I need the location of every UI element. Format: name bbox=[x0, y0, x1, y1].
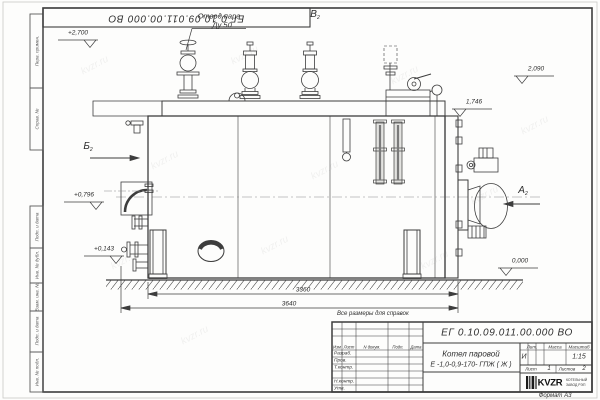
dimension-annotations bbox=[58, 29, 554, 314]
titleblock-col-doc: N докум. bbox=[364, 344, 381, 349]
ground-line bbox=[106, 280, 523, 290]
titleblock-row-tkontr: Т.контр. bbox=[334, 365, 353, 370]
boiler-side-view bbox=[93, 40, 540, 289]
titleblock-mass-label: Масса bbox=[548, 344, 561, 349]
safety-valve bbox=[300, 42, 320, 99]
water-level-gauge bbox=[374, 120, 387, 184]
titleblock-col-list: Лист bbox=[344, 344, 355, 349]
view-marker-b: Б2 bbox=[83, 141, 92, 153]
titleblock-product-type: Е -1,0-0,9-170- ГПЖ ( Ж ) bbox=[430, 362, 511, 369]
titleblock-row-prov: Пров. bbox=[334, 358, 347, 363]
reference-note: Все размеры для справок bbox=[337, 311, 409, 317]
titleblock-sheet-number: 1 bbox=[547, 366, 550, 372]
titleblock-sheet-label: Лист bbox=[525, 367, 537, 372]
dimension-label: 3360 bbox=[296, 287, 310, 294]
margin-stamp: Подп. и дата bbox=[34, 213, 39, 242]
kvzr-logo-mark bbox=[526, 376, 537, 389]
top-casing bbox=[93, 101, 445, 133]
drawing-sheet: kvzr.ru kvzr.ru kvzr.ru kvzr.ru kvzr.ru … bbox=[0, 0, 600, 400]
view-marker-a: А2 bbox=[518, 185, 527, 197]
boiler-shell bbox=[116, 116, 540, 278]
view-sheet-ref: 2 bbox=[525, 191, 528, 197]
titleblock-sheets-total: 2 bbox=[582, 366, 585, 372]
drawing-canvas bbox=[0, 0, 600, 400]
titleblock-col-date: Дата bbox=[410, 344, 421, 349]
kvzr-logo-text: KVZR bbox=[538, 377, 563, 388]
steam-outlet-dn-label: Ду 50 bbox=[212, 20, 232, 29]
margin-stamp: Справ. № bbox=[34, 109, 39, 130]
margin-stamp: Перв. примен. bbox=[34, 36, 39, 67]
titleblock-col-izm: Изм bbox=[333, 344, 341, 349]
titleblock-lit-label: Лит. bbox=[527, 344, 538, 349]
rear-dome bbox=[384, 46, 442, 116]
titleblock-sheets-label: Листов bbox=[559, 367, 575, 372]
level-float-tube bbox=[343, 119, 351, 161]
format-label: Формат А3 bbox=[539, 393, 572, 399]
dimension-label: 3640 bbox=[282, 301, 296, 308]
elevation-label: 2,090 bbox=[528, 66, 544, 73]
sheet-frame bbox=[3, 2, 597, 398]
margin-stamp: Инв. № подл. bbox=[34, 358, 39, 387]
elevation-label: +2,700 bbox=[68, 30, 88, 37]
titleblock-scale-value: 1:15 bbox=[572, 354, 586, 361]
elevation-label: 1,746 bbox=[466, 99, 482, 106]
margin-stamp: Подп. и дата bbox=[34, 317, 39, 346]
support-legs bbox=[149, 230, 421, 279]
elevation-label: +0,796 bbox=[74, 192, 94, 199]
titleblock-row-nkontr: Н.контр. bbox=[334, 379, 354, 384]
elevation-label: +0,143 bbox=[94, 246, 114, 253]
water-level-gauge bbox=[392, 120, 405, 184]
burner bbox=[458, 148, 508, 238]
titleblock-col-sign: Подп. bbox=[392, 344, 403, 349]
view-sheet-ref: 2 bbox=[90, 147, 93, 153]
view-letter: А bbox=[518, 185, 525, 196]
titleblock-designation: ЕГ 0.10.09.011.00.000 ВО bbox=[441, 327, 573, 338]
view-marker-v: В2 bbox=[310, 9, 319, 21]
kvzr-logo-sub2: ЗАВОД РЭП bbox=[566, 382, 585, 386]
titleblock-row-razrab: Разраб. bbox=[334, 351, 351, 356]
margin-stamp: Инв. № дубл. bbox=[34, 251, 39, 279]
titleblock-product-name: Котел паровой bbox=[442, 350, 499, 359]
view-letter: В bbox=[310, 9, 317, 20]
safety-valve bbox=[240, 42, 260, 99]
kvzr-logo-sub1: КОТЕЛЬНЫЙ bbox=[566, 377, 587, 381]
titleblock-scale-label: Масштаб bbox=[568, 344, 589, 349]
margin-stamp: Взам. инв. № bbox=[34, 283, 39, 311]
steam-outlet-valve bbox=[177, 40, 199, 98]
manhole bbox=[198, 241, 224, 262]
titleblock-row-utv: Утв. bbox=[334, 386, 345, 391]
view-sheet-ref: 2 bbox=[317, 15, 320, 21]
elevation-label: 0,000 bbox=[512, 258, 528, 265]
titleblock-lit-value: И bbox=[521, 354, 526, 361]
